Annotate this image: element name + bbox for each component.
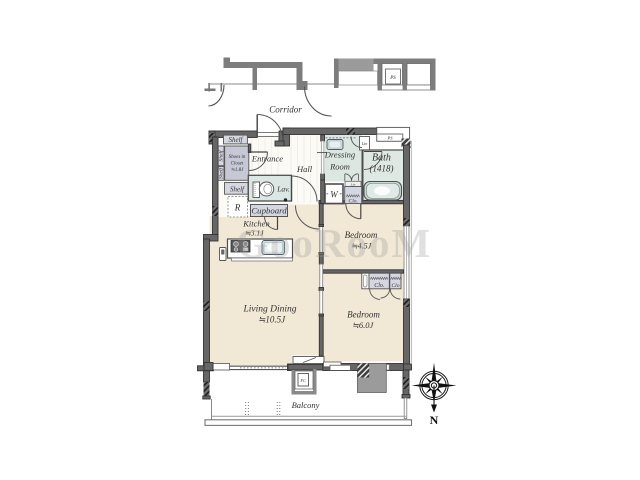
svg-text:GooRooM: GooRooM [236,220,432,266]
svg-text:(1418): (1418) [370,164,394,174]
svg-text:Clo.: Clo. [374,283,384,289]
svg-text:≒6.0J: ≒6.0J [352,320,375,330]
svg-text:Shoes in: Shoes in [229,155,246,160]
svg-text:PS: PS [387,136,394,141]
svg-text:Lav.: Lav. [276,185,290,194]
svg-text:Bedroom: Bedroom [347,310,380,320]
svg-text:Corridor: Corridor [269,105,302,115]
svg-text:Living Dining: Living Dining [242,305,296,315]
svg-text:Lin: Lin [361,141,368,146]
svg-text:R: R [234,203,241,213]
svg-text:Balcony: Balcony [292,400,320,410]
svg-text:Closet: Closet [231,162,244,167]
svg-text:Lin: Lin [350,182,356,186]
svg-text:Clo: Clo [392,283,400,289]
svg-text:Clo.: Clo. [349,199,358,205]
svg-text:≒1.8J: ≒1.8J [231,167,244,173]
svg-text:Entrance: Entrance [251,154,283,164]
svg-text:Shelf: Shelf [229,136,244,144]
svg-text:PS: PS [389,76,396,81]
svg-text:N: N [430,413,439,427]
svg-text:FC: FC [300,378,307,383]
svg-text:≒10.5J: ≒10.5J [258,315,286,325]
svg-text:Room: Room [329,162,350,172]
svg-text:Dressing: Dressing [324,150,355,160]
svg-text:Bath: Bath [372,153,391,164]
svg-text:Hall: Hall [296,164,313,174]
svg-text:Shelf: Shelf [230,186,245,194]
svg-text:Cupboard: Cupboard [251,206,287,216]
svg-text:Shelf: Shelf [218,149,225,161]
svg-text:Shelf: Shelf [218,167,225,179]
